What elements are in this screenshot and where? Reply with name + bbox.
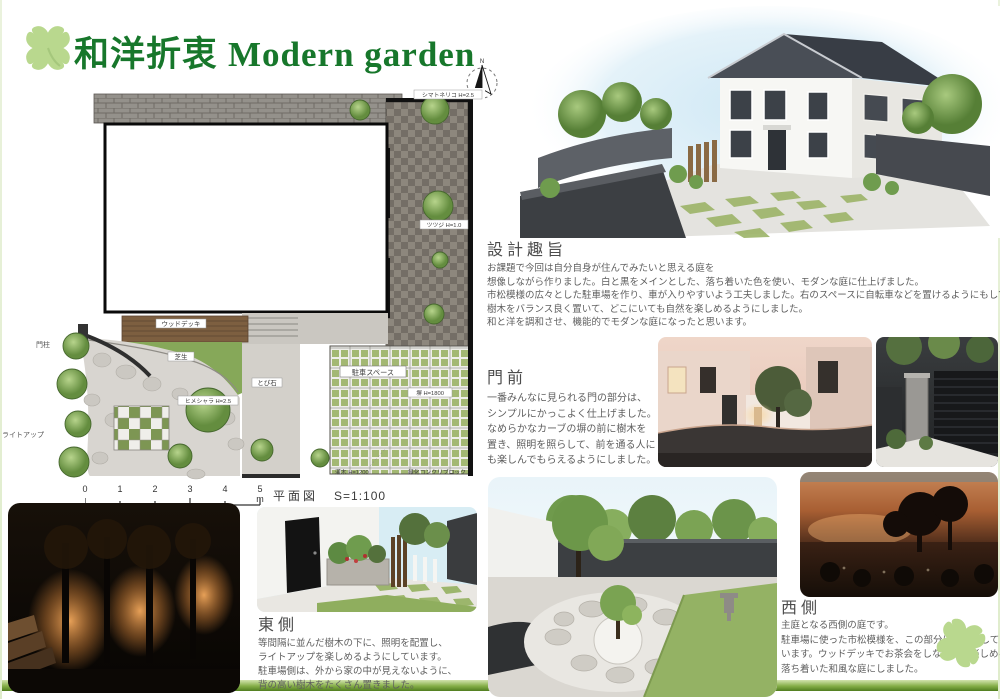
east-text: 等間隔に並んだ樹木の下に、照明を配置し、 ライトアップを楽しめるようにしています… [258,637,457,693]
west-heading: 西側 [781,594,821,618]
plan-drawing: ウッドデッキ 芝生 とび石 ヒメシャラ H=2.5 駐車スペース 塀 H=180… [30,88,485,480]
compass-north-label: N [480,59,484,65]
photo-sunset-west [800,472,998,597]
gate-heading: 門前 [487,364,527,388]
plan-parking-area [330,346,470,474]
plan-label-lawn: 芝生 [175,352,189,361]
plan-caption-title: 平面図 [273,489,318,503]
east-line: ライトアップを楽しめるようにしています。 [258,651,457,665]
scale-tick: 0 [78,484,92,494]
gate-line: 一番みんなに見られる門の部分は、 [487,391,657,407]
presentation-board: 和洋折衷Modern garden N [0,0,1000,699]
photo-west-garden [488,477,777,697]
gate-line: なめらかなカーブの塀の前に樹木を [487,422,657,438]
plan-label-stepping: とび石 [257,379,277,387]
gate-text: 一番みんなに見られる門の部分は、 シンプルにかっこよく仕上げました。 なめらかな… [487,391,657,469]
left-edge-line [0,0,2,699]
plan-label-tree-right: シマトネリコ H=2.5 [422,92,474,99]
concept-line: 想像しながら作りました。白と黒をメインとした、落ち着いた色を使い、モダンな庭に仕… [487,276,1000,290]
site-plan: ウッドデッキ 芝生 とび石 ヒメシャラ H=2.5 駐車スペース 塀 H=180… [30,88,485,513]
plan-scale: S=1:100 [334,489,386,503]
gate-line: シンプルにかっこよく仕上げました。 [487,407,657,423]
plan-label-lightup: ライトアップ [2,430,44,440]
plan-checker-tiles [114,406,169,450]
east-line: 駐車場側は、外から家の中が見えないように、 [258,665,457,679]
page-title-en: Modern garden [228,35,475,74]
photo-night-lightup [8,503,240,693]
plan-entry-walk [242,344,300,478]
plan-label-parking: 駐車スペース [352,368,394,377]
concept-line: 和と洋を調和させ、機能的でモダンな庭になったと思います。 [487,316,1000,330]
gate-line: も楽しんでもらえるようにしました。 [487,453,657,469]
east-line: 等間隔に並んだ樹木の下に、照明を配置し、 [258,637,457,651]
plan-label-deck: ウッドデッキ [162,319,201,328]
page-title: 和洋折衷Modern garden [74,26,475,77]
photo-east-garden [257,507,477,612]
concept-heading: 設計趣旨 [487,236,567,260]
photo-gate-closeup [876,337,998,467]
page-title-jp: 和洋折衷 [74,35,218,74]
gate-line: 置き、照明を照らして、前を通る人に [487,438,657,454]
clover-logo-bottom [936,616,986,668]
plan-label-shrub: 灌木 H=1200 [335,468,369,476]
concept-line: 樹木をバランス良く置いて、どこにいても自然を楽しめるようにしました。 [487,303,1000,317]
plan-boundary-wall-right [468,98,473,476]
scale-tick: 4 [218,484,232,494]
plan-label-wall: 塀 H=1800 [416,389,444,397]
east-heading: 東側 [258,611,298,635]
concept-text: お課題で今回は自分自身が住んでみたいと思える庭を 想像しながら作りました。白と黒… [487,262,1000,330]
plan-house-footprint [105,124,387,312]
plan-label-azalea: ツツジ H=1.0 [427,223,462,229]
scale-tick: 2 [148,484,162,494]
clover-logo-top [24,22,72,72]
plan-label-greenblock: 緑化コンクリブロック [408,468,466,476]
plan-label-gatepost: 門柱 [36,340,50,350]
photo-evening-gate-render [658,337,872,467]
concept-line: 市松模様の広々とした駐車場を作り、車が入りやすいよう工夫しました。右のスペースに… [487,289,1000,303]
house-perspective-render [520,6,1000,238]
scale-tick: 3 [183,484,197,494]
scale-tick: 1 [113,484,127,494]
concept-line: お課題で今回は自分自身が住んでみたいと思える庭を [487,262,1000,276]
plan-caption: 平面図S=1:100 [273,487,386,504]
east-line: 背の高い樹木をたくさん置きました。 [258,679,457,693]
plan-label-tree-center: ヒメシャラ H=2.5 [185,398,231,405]
